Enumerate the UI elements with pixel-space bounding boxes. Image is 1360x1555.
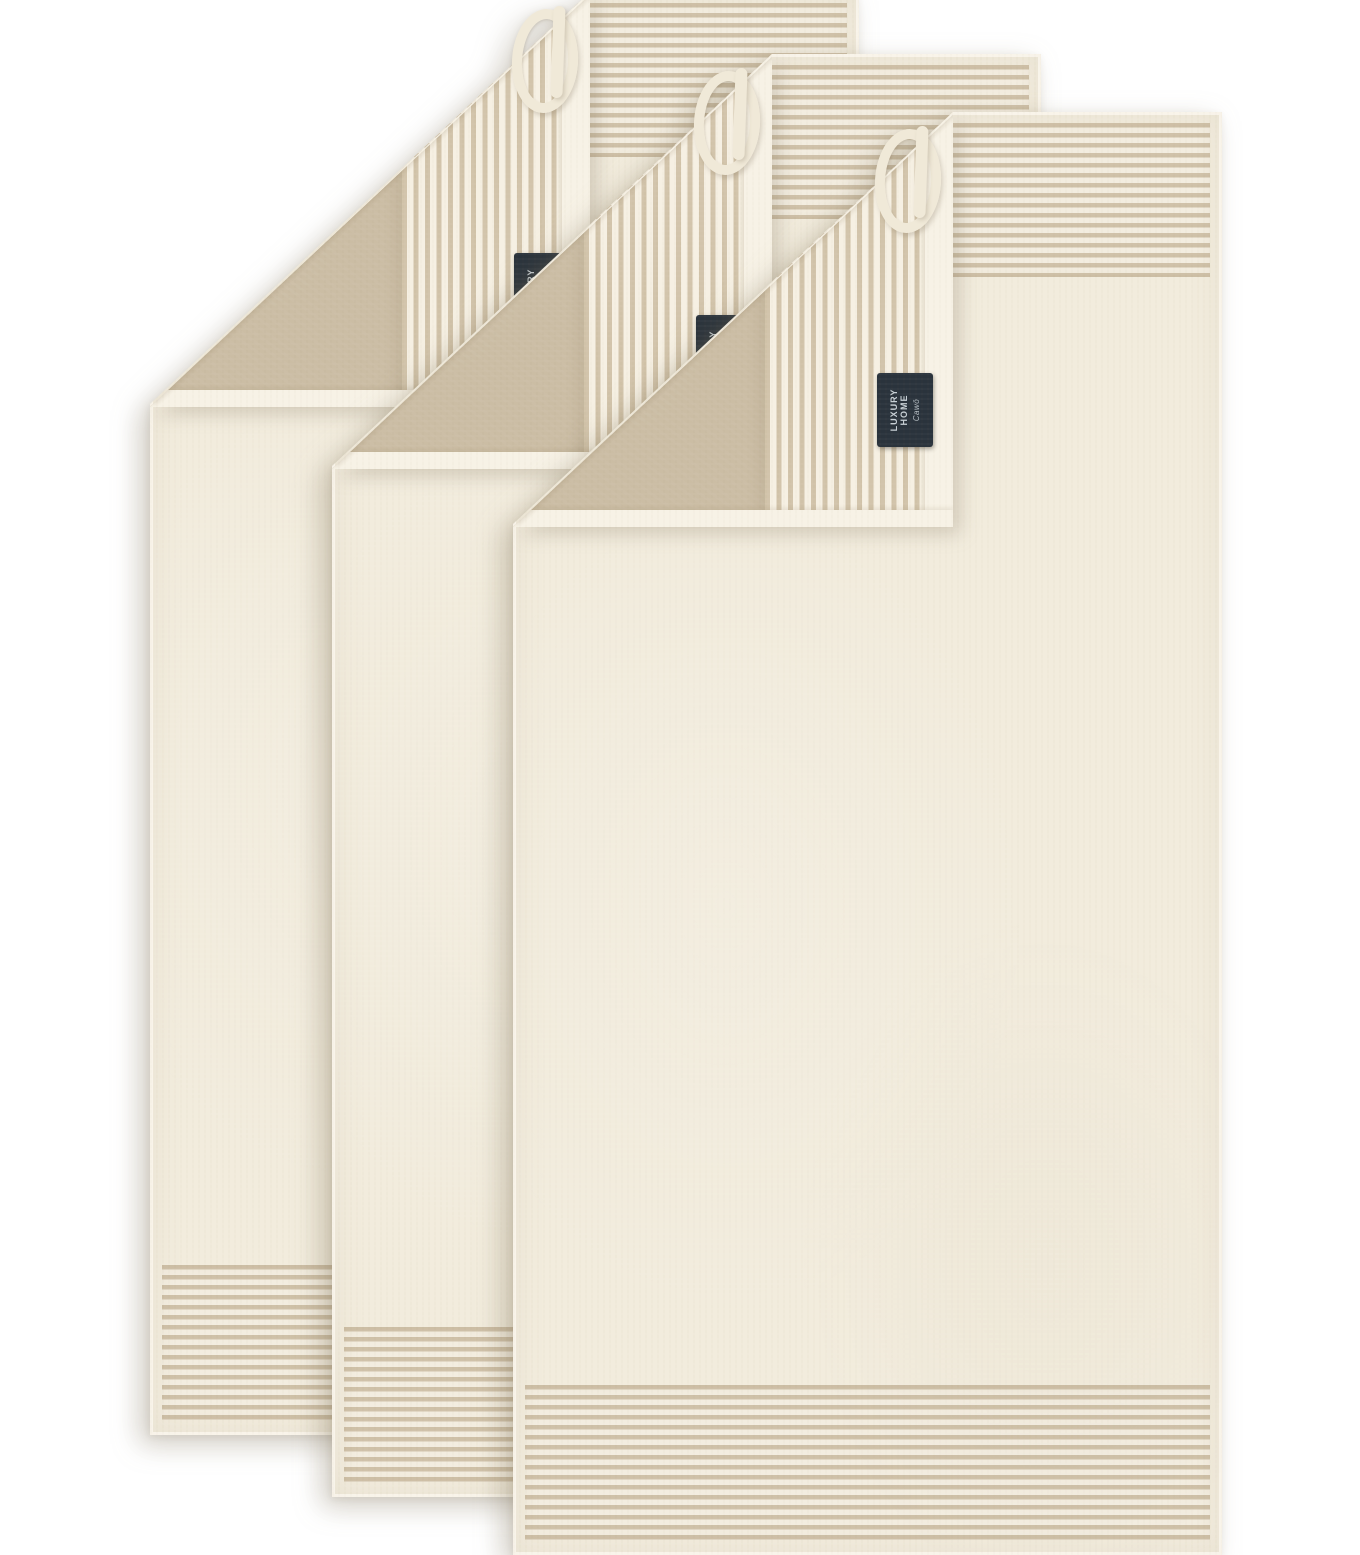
tag-line-1: LUXURY [889,389,899,432]
product-photo-canvas: LUXURY HOME Cawö [0,0,1360,1555]
tag-line-2: HOME [899,395,909,426]
bottom-stripe-band [525,1385,1210,1540]
towel-front-face: LUXURY HOME Cawö [513,112,1222,1555]
brand-tag-text: LUXURY HOME Cawö [877,373,933,447]
tag-brand-name: Cawö [912,399,921,421]
towel-front: LUXURY HOME Cawö [513,112,1222,1555]
flap-hem-bottom [513,510,953,527]
brand-tag: LUXURY HOME Cawö [877,373,933,447]
flap-reverse-plain [513,112,765,527]
